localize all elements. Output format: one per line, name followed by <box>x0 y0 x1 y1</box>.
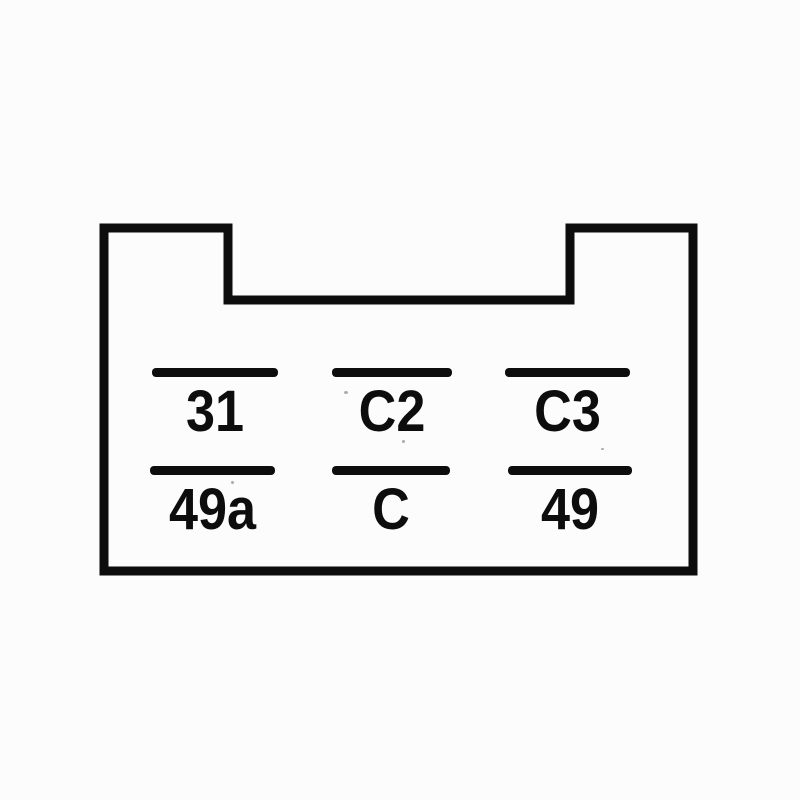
scan-speck <box>231 481 234 484</box>
pin-label: C3 <box>511 383 624 441</box>
pin-label: 49a <box>156 481 269 539</box>
pin-c3: C3 <box>505 368 630 441</box>
pin-terminal-bar <box>150 466 275 475</box>
pin-terminal-bar <box>152 368 278 377</box>
pin-terminal-bar <box>332 466 450 475</box>
scan-speck <box>344 391 348 394</box>
pin-label: 31 <box>158 383 271 441</box>
pin-31: 31 <box>152 368 278 441</box>
relay-pinout-diagram: 31 C2 C3 49a C 49 <box>0 0 800 800</box>
pin-49: 49 <box>508 466 632 539</box>
pin-c2: C2 <box>332 368 452 441</box>
pin-label: C2 <box>338 383 446 441</box>
scan-speck <box>402 440 405 443</box>
pin-c: C <box>332 466 450 539</box>
pin-terminal-bar <box>332 368 452 377</box>
pin-label: C <box>338 481 444 539</box>
pin-terminal-bar <box>505 368 630 377</box>
pin-terminal-bar <box>508 466 632 475</box>
scan-speck <box>601 448 604 450</box>
pin-49a: 49a <box>150 466 275 539</box>
pin-label: 49 <box>514 481 626 539</box>
